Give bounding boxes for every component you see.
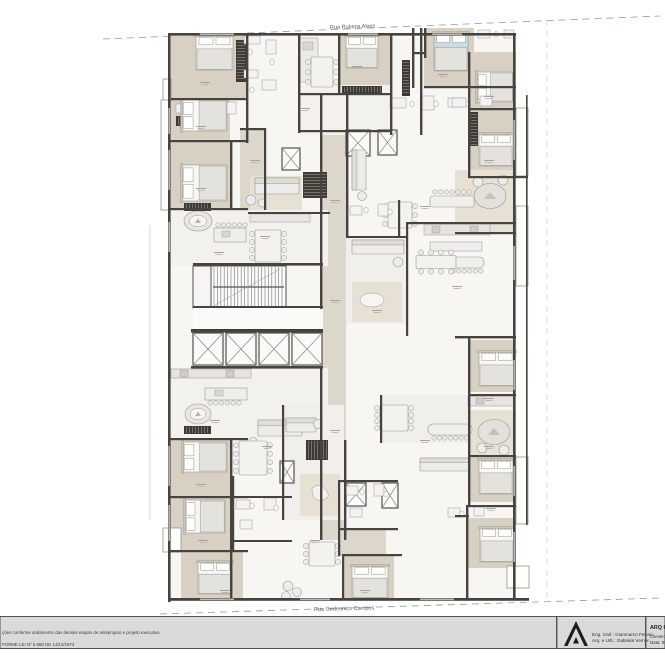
svg-text:Cliente: S: Cliente: S [650,634,665,639]
svg-text:ARQ 0: ARQ 0 [650,625,665,631]
svg-text:Data: 05: Data: 05 [650,640,665,645]
svg-text:ções conforme andamento das de: ções conforme andamento das demais etapa… [2,630,161,635]
svg-text:Eng. Civil : Gianmarco Ferrari: Eng. Civil : Gianmarco Ferrari [592,632,653,637]
svg-text:Arq. e Urb.: Gabriela Verner: Arq. e Urb.: Gabriela Verner [592,638,649,643]
svg-text:FORME LEI Nº 5.988 DE 14/12/19: FORME LEI Nº 5.988 DE 14/12/1973 [2,642,75,647]
